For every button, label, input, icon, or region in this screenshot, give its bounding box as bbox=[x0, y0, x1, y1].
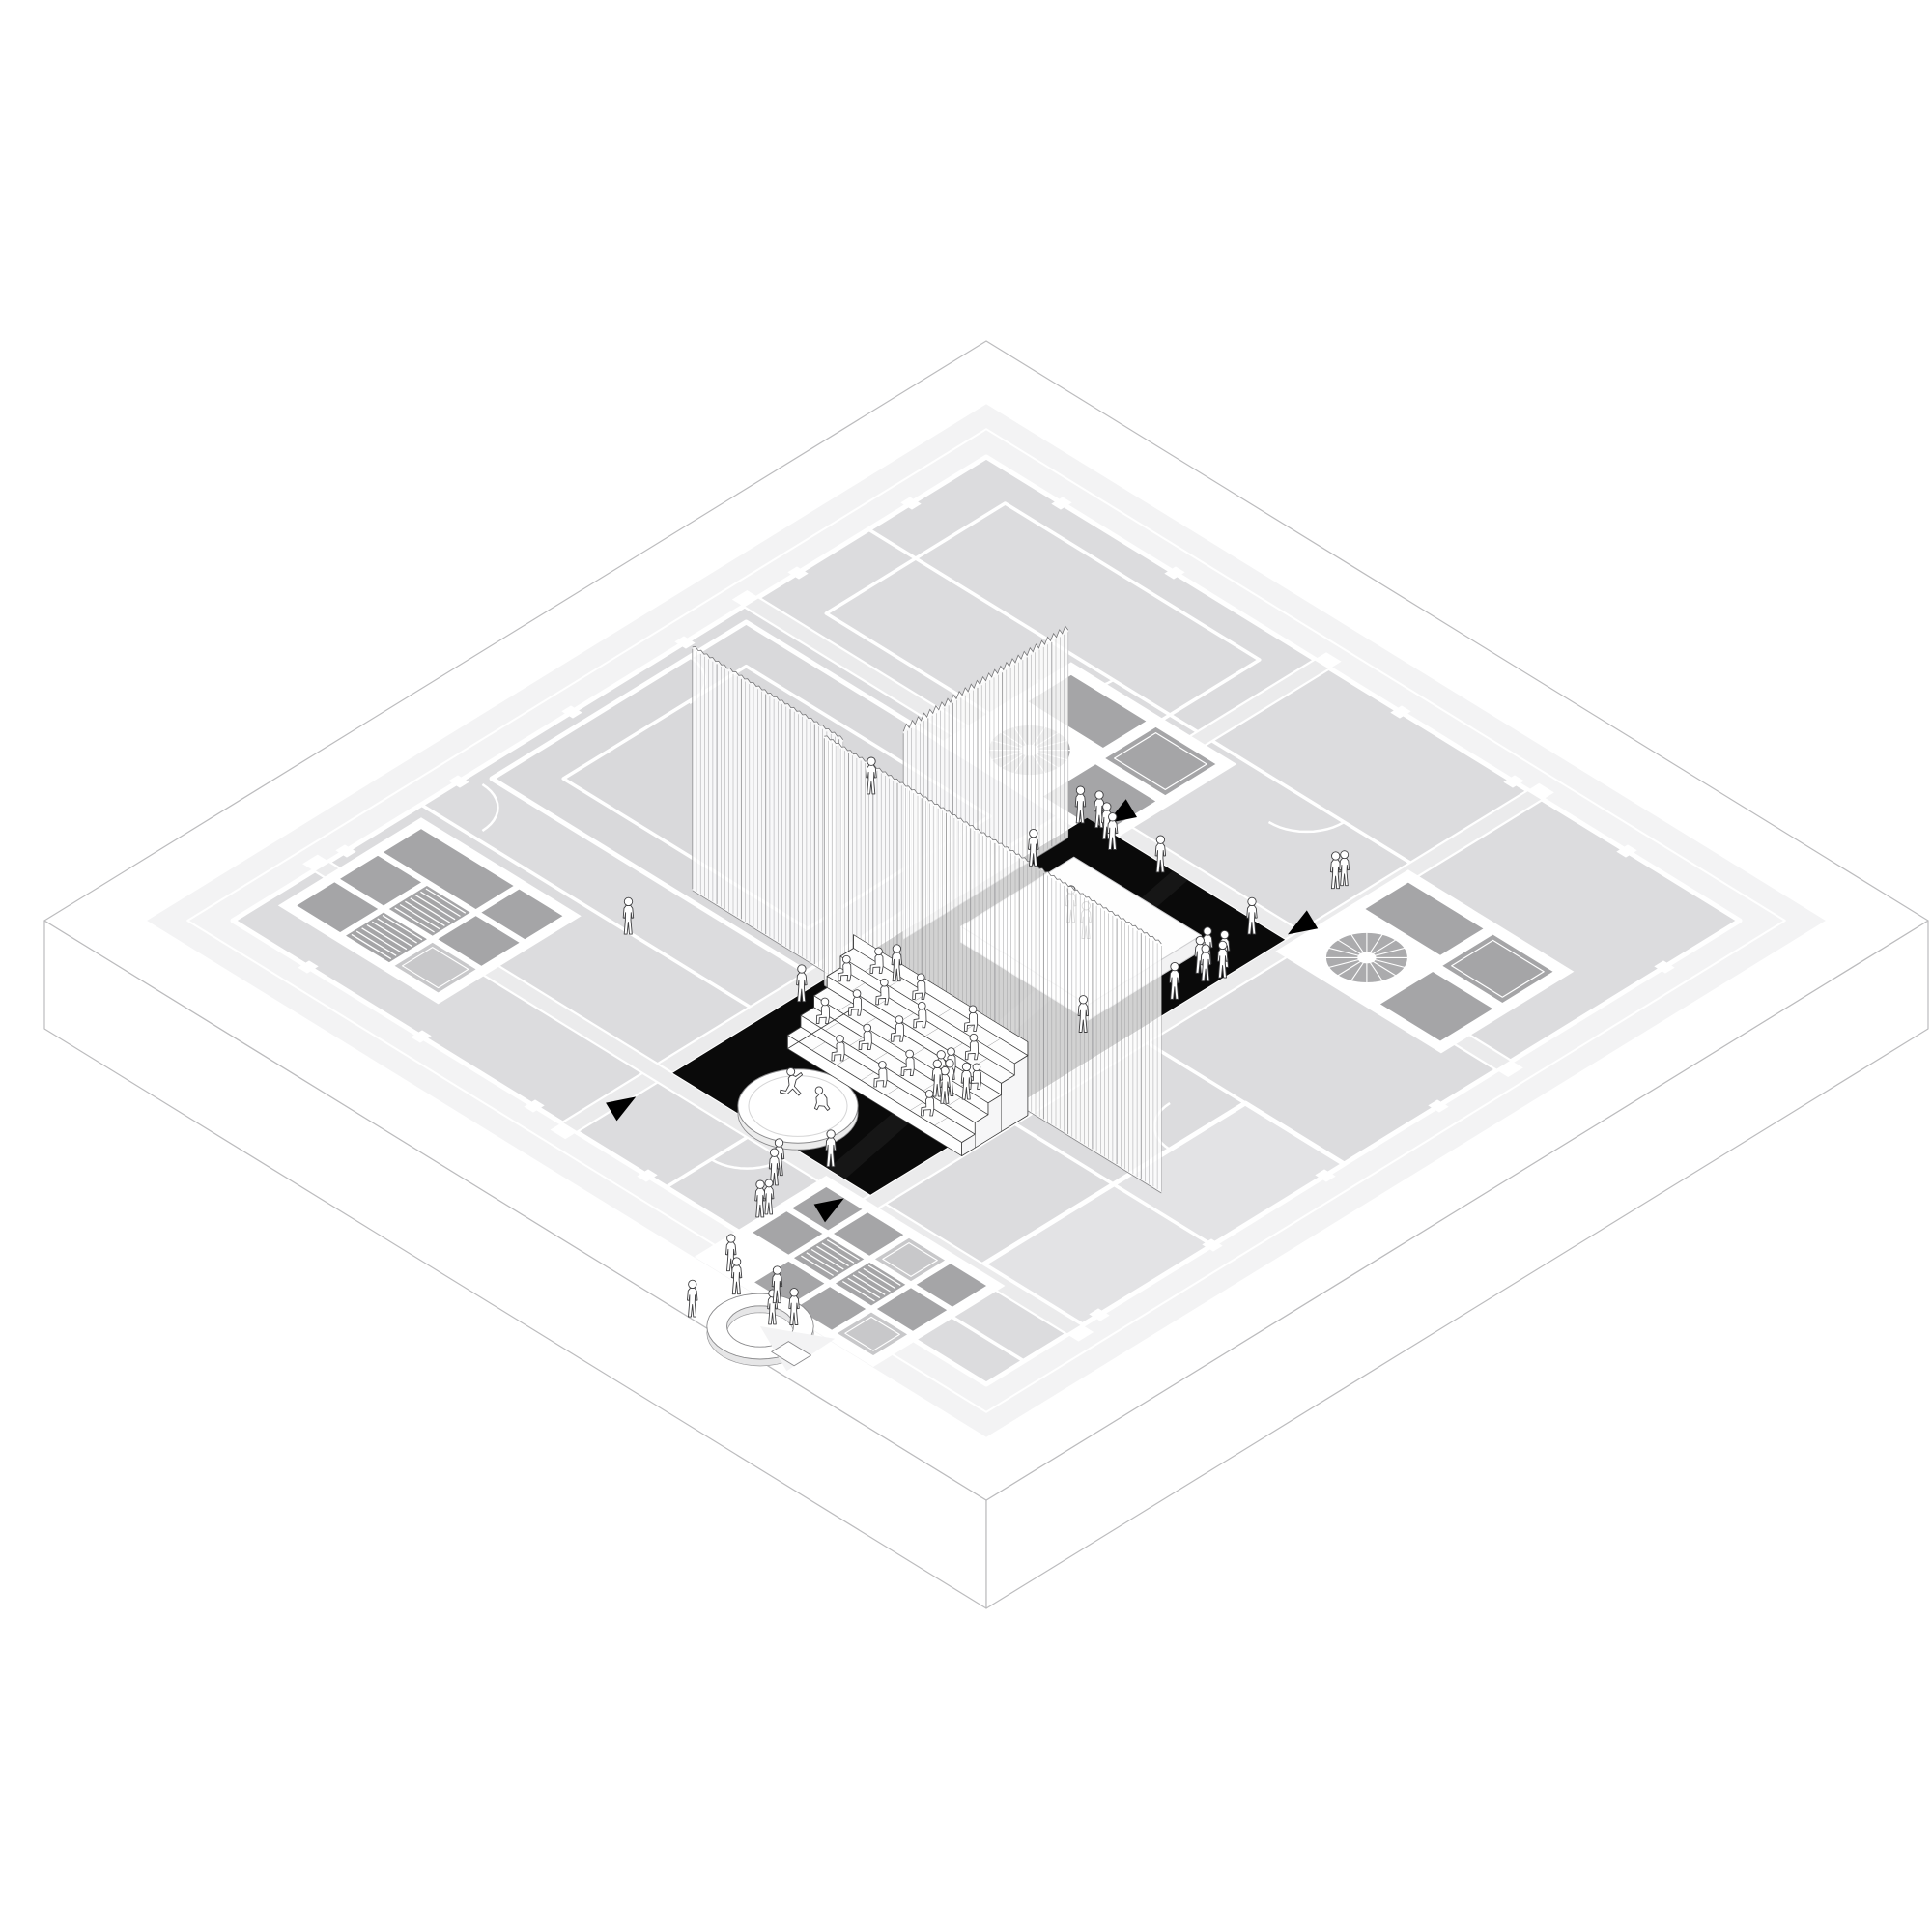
stair-center bbox=[1357, 952, 1376, 964]
diagram-canvas bbox=[0, 0, 1932, 1932]
axonometric-scene bbox=[0, 0, 1932, 1932]
